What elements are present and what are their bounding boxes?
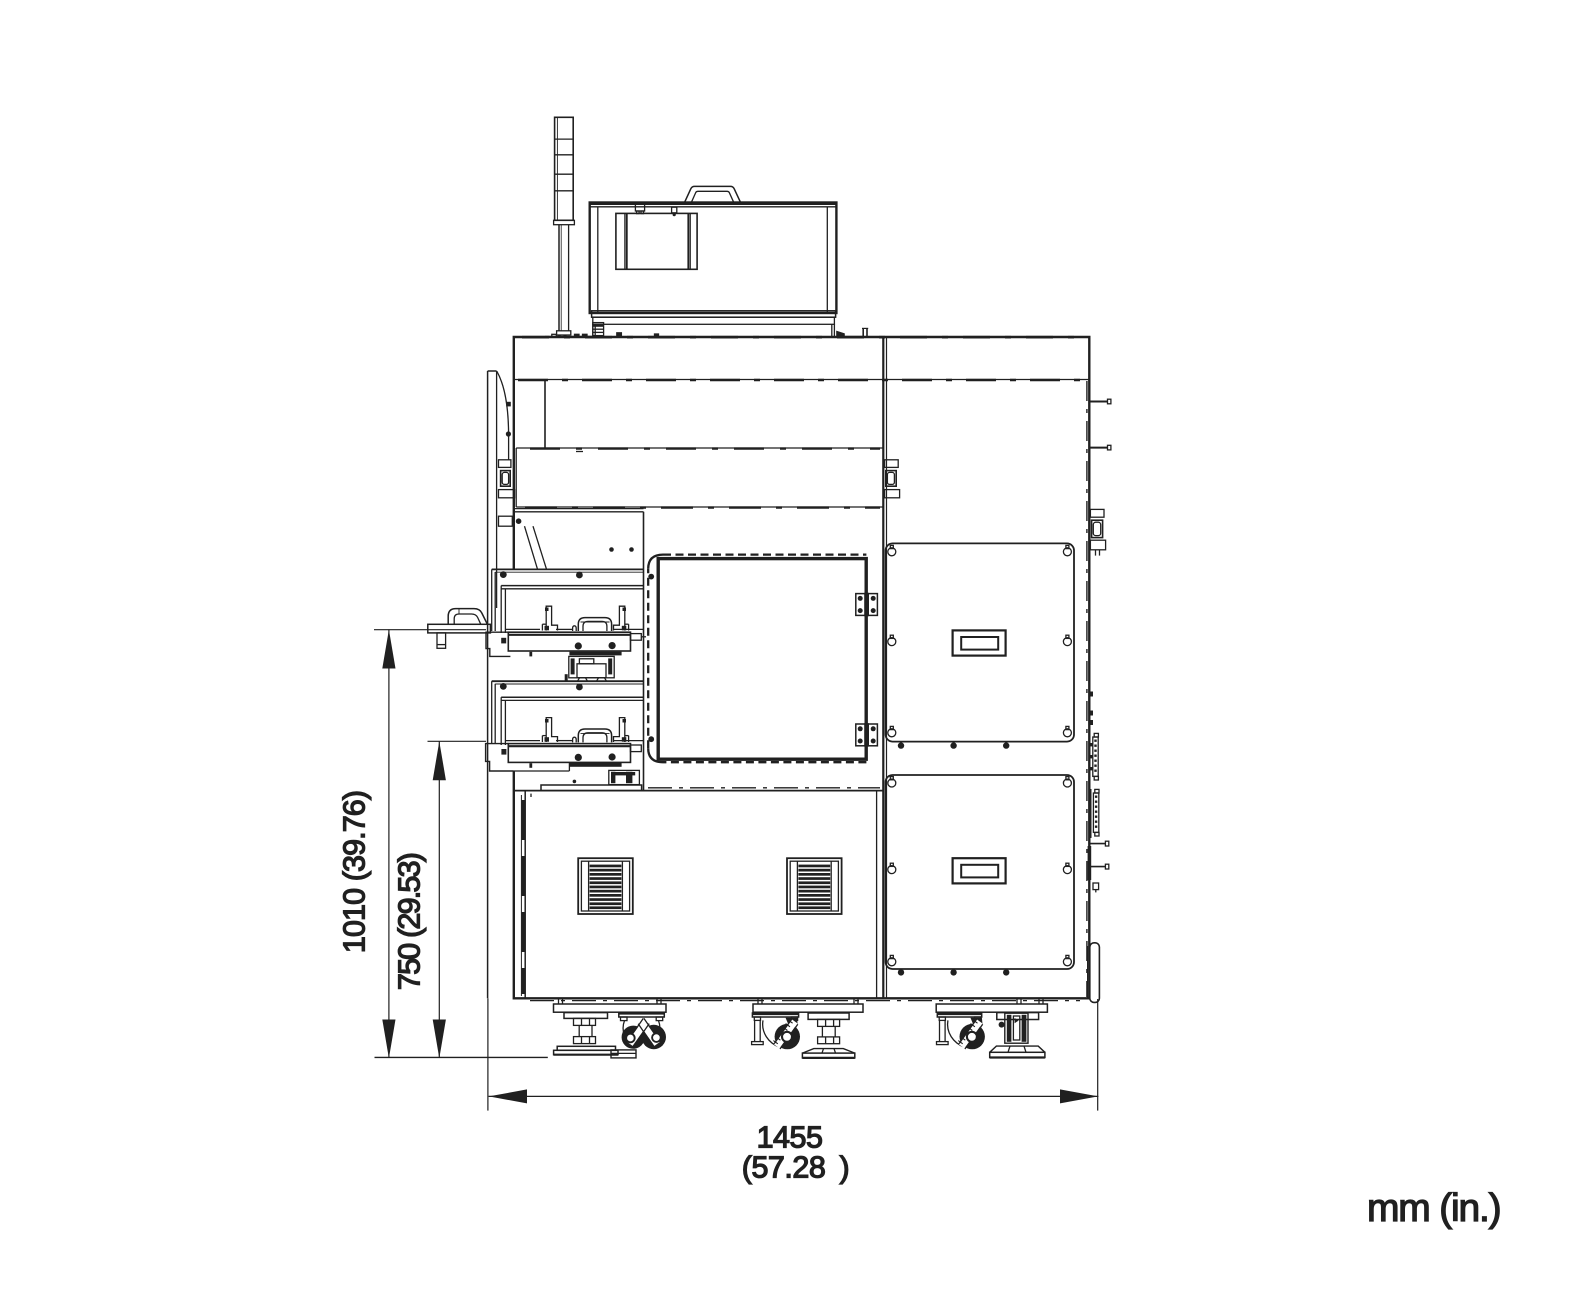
svg-text:(57.28 ): (57.28 ): [742, 1150, 849, 1184]
svg-text:1010 (39.76): 1010 (39.76): [338, 791, 372, 953]
svg-text:mm (in.): mm (in.): [1367, 1187, 1500, 1230]
svg-text:750 (29.53): 750 (29.53): [393, 853, 427, 990]
